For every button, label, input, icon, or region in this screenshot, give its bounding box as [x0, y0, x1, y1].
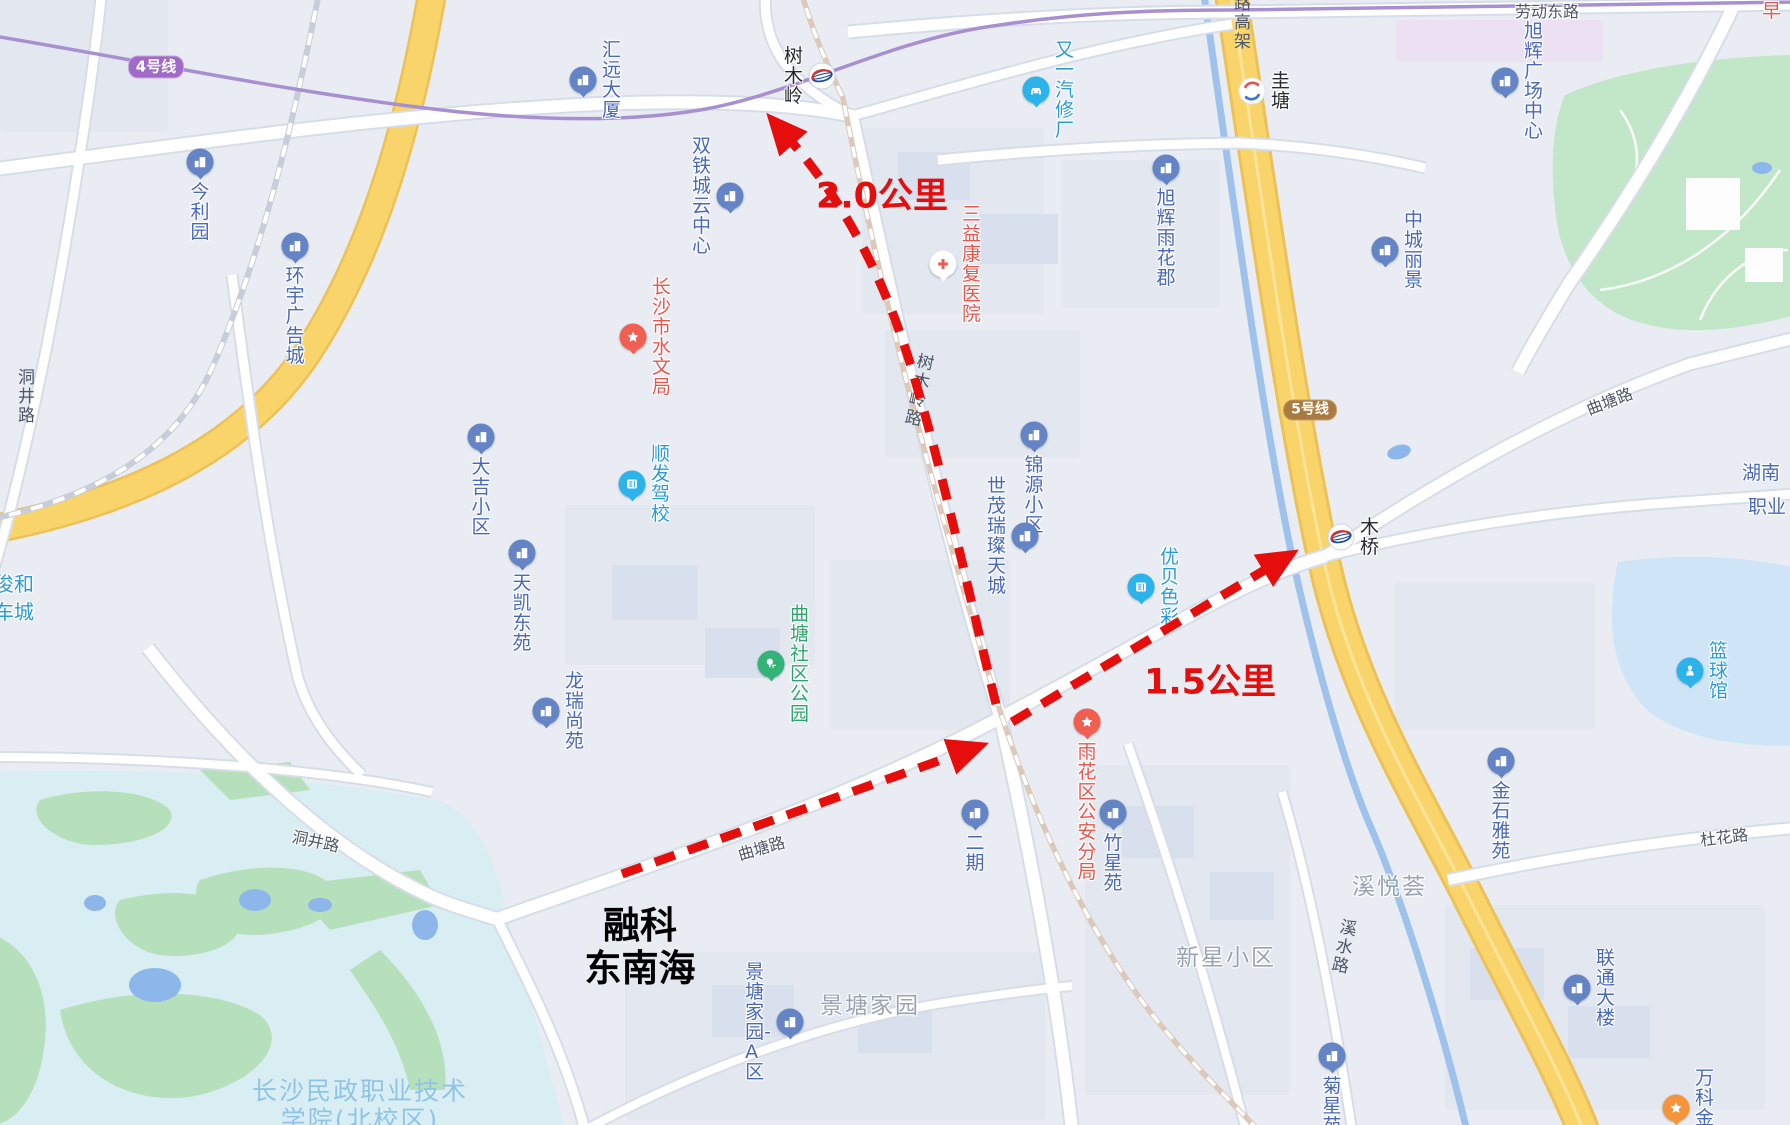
poi-label: 三益康复医院	[962, 204, 981, 324]
poi-label: 金石雅苑	[1491, 781, 1510, 861]
area-label-xinxing: 新星小区	[1176, 938, 1276, 972]
poi-label: 曲塘社区公园	[790, 604, 809, 724]
building-pin-icon	[1021, 422, 1048, 449]
poi-label: 大吉小区	[471, 457, 490, 537]
poi-label: 世茂瑞璨天城	[987, 476, 1006, 596]
area-label-college: 长沙民政职业技术 学院(北校区)	[252, 1077, 468, 1125]
poi-label: 龙瑞尚苑	[565, 671, 584, 751]
hospital-cross-pin-icon	[930, 251, 957, 278]
poi-label: 旭辉雨花郡	[1156, 188, 1175, 288]
partial-label-left-1: 南俊和	[0, 568, 34, 597]
poi-label: 景塘家园-A区	[745, 962, 771, 1082]
poi-label: 竹星苑	[1103, 833, 1122, 893]
building-pin-icon	[1319, 1043, 1346, 1070]
origin-label-rongke-dongnanhai: 融科 东南海	[585, 905, 696, 991]
star-pin-icon	[1663, 1095, 1690, 1122]
building-pin-icon	[1372, 237, 1399, 264]
poi-label: 优贝色彩	[1160, 547, 1179, 627]
distance-label-muqiao: 1.5公里	[1144, 654, 1276, 705]
map-viewport[interactable]: 4号线 5号线 树木岭 圭塘 木桥 劳动东路 路高架 树木岭路 曲塘路 曲塘路 …	[0, 0, 1790, 1125]
area-label-xiyuehui: 溪悦荟	[1352, 867, 1427, 901]
park-area	[1553, 55, 1790, 330]
road-label-dongjing-w: 洞井路	[12, 368, 37, 425]
star-pin-icon	[620, 324, 647, 351]
poi-label: 环宇广告城	[285, 266, 304, 366]
person-pin-icon	[1677, 658, 1704, 685]
partial-label-top-right: 早	[1762, 0, 1781, 23]
building-pin-icon	[1012, 523, 1039, 550]
road-label-laodongdonglu: 劳动东路	[1515, 0, 1579, 22]
building-pin-icon	[187, 149, 214, 176]
building-pin-icon	[1492, 68, 1519, 95]
partial-label-right-2: 职业	[1748, 492, 1786, 519]
poi-label: 菊星苑	[1322, 1076, 1341, 1125]
building-pin-icon	[282, 233, 309, 260]
partial-label-right-1: 湖南	[1742, 458, 1780, 485]
metro-loop-icon	[1238, 77, 1266, 105]
depot-strip	[1396, 20, 1603, 62]
building-pin-icon	[509, 540, 536, 567]
poi-label: 顺发驾校	[651, 444, 670, 524]
metro-logo-icon	[1327, 523, 1355, 551]
poi-label: 长沙市水文局	[652, 277, 671, 397]
poi-label: 今利园	[190, 182, 209, 242]
book-pin-icon	[1128, 574, 1155, 601]
metro-line4-badge: 4号线	[128, 56, 184, 79]
park-tree-pin-icon	[758, 651, 785, 678]
poi-label: 中城丽景	[1404, 210, 1423, 290]
building-pin-icon	[962, 800, 989, 827]
building-pin-icon	[570, 67, 597, 94]
building-pin-icon	[1564, 975, 1591, 1002]
poi-label: 篮球馆	[1709, 641, 1728, 701]
poi-label: 万科金域	[1695, 1068, 1714, 1125]
poi-label: 双铁城云中心	[692, 136, 711, 256]
metro-logo-icon	[808, 62, 836, 90]
poi-label: 二期	[965, 833, 984, 873]
college-line1: 长沙民政职业技术	[252, 1077, 468, 1106]
poi-label: 汇远大厦	[602, 40, 621, 120]
road-label-elevated: 路高架	[1228, 0, 1253, 51]
book-pin-icon	[619, 471, 646, 498]
car-repair-pin-icon	[1023, 77, 1050, 104]
poi-label: 雨花区公安分局	[1077, 742, 1096, 882]
station-label: 木桥	[1360, 517, 1379, 557]
partial-label-left-2: 手车城	[0, 596, 34, 625]
building-pin-icon	[1100, 800, 1127, 827]
station-label: 圭塘	[1271, 71, 1290, 111]
poi-label: 旭辉广场中心	[1524, 21, 1543, 141]
origin-line2: 东南海	[585, 948, 696, 991]
station-label: 树木岭	[784, 46, 803, 106]
college-line2: 学院(北校区)	[252, 1106, 468, 1125]
building-pin-icon	[468, 424, 495, 451]
building-pin-icon	[533, 698, 560, 725]
poi-label: 联通大楼	[1596, 948, 1615, 1028]
building-pin-icon	[777, 1009, 804, 1036]
distance-label-shumuling: 2.0公里	[816, 168, 948, 219]
building-pin-icon	[1488, 748, 1515, 775]
building-pin-icon	[1153, 155, 1180, 182]
star-pin-icon	[1074, 709, 1101, 736]
origin-line1: 融科	[585, 905, 696, 948]
poi-label: 又一汽修厂	[1055, 40, 1074, 140]
poi-label: 天凯东苑	[512, 573, 531, 653]
area-label-jingtang: 景塘家园	[820, 986, 920, 1020]
building-pin-icon	[717, 183, 744, 210]
metro-line5-badge: 5号线	[1283, 400, 1337, 421]
